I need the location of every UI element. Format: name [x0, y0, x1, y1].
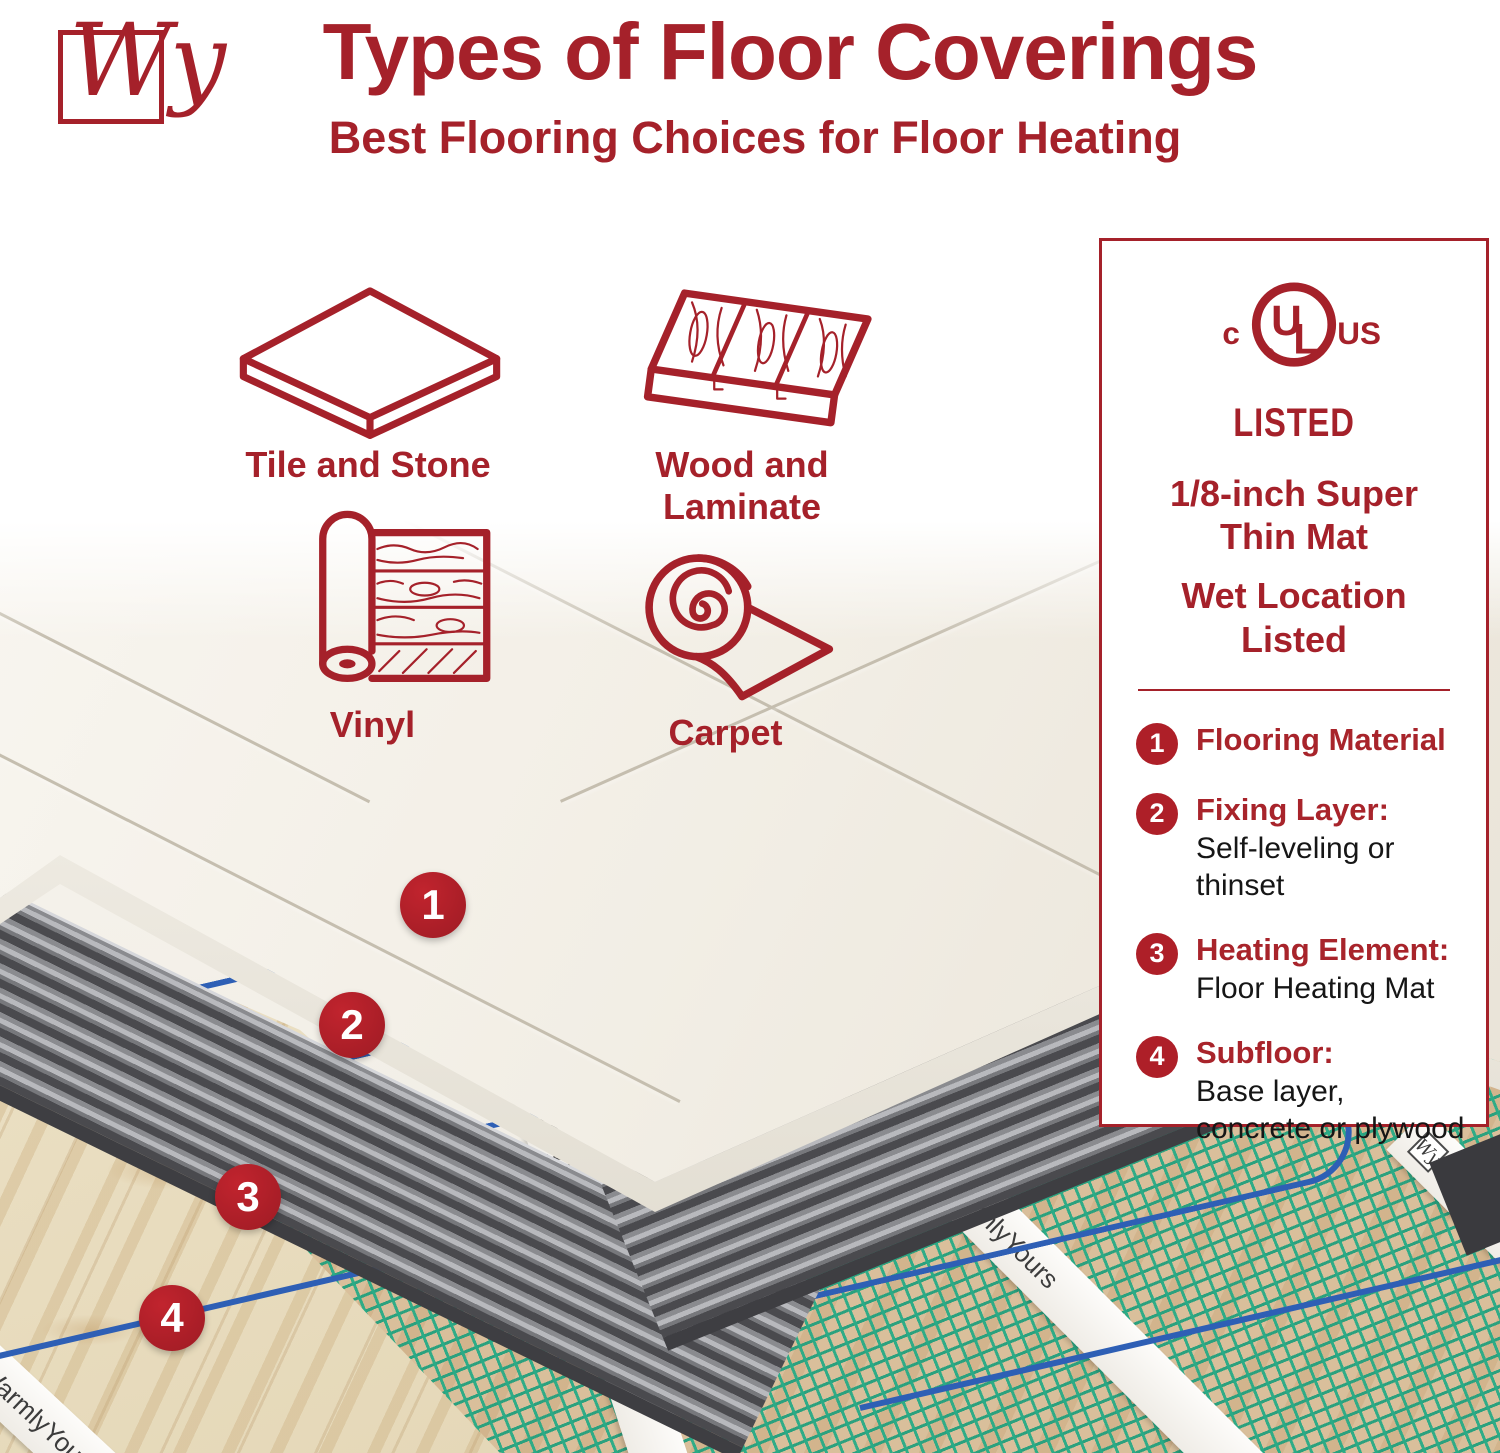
vinyl-roll-icon	[282, 498, 522, 703]
infographic-canvas: Wy Types of Floor Coverings Best Floorin…	[0, 0, 1500, 1453]
legend-item-fixing-layer: 2 Fixing Layer: Self-leveling or thinset	[1102, 791, 1486, 905]
layer-marker-3: 3	[215, 1164, 281, 1230]
wood-and-laminate-label: Wood and Laminate	[582, 444, 902, 528]
tile-icon	[220, 282, 520, 447]
tile-and-stone-label: Tile and Stone	[218, 444, 518, 486]
feature-thin-mat: 1/8-inch Super Thin Mat	[1154, 472, 1434, 558]
feature-wet-location: Wet Location Listed	[1169, 574, 1419, 660]
layer-marker-2: 2	[319, 992, 385, 1058]
vinyl-label: Vinyl	[250, 704, 495, 746]
legend-badge-4: 4	[1136, 1036, 1178, 1078]
ul-c-mark: c	[1222, 316, 1240, 351]
panel-divider	[1138, 689, 1450, 691]
legend-heading: Subfloor:	[1196, 1034, 1466, 1071]
legend-badge-2: 2	[1136, 793, 1178, 835]
page-subtitle: Best Flooring Choices for Floor Heating	[125, 112, 1385, 164]
legend-item-heating-element: 3 Heating Element: Floor Heating Mat	[1102, 931, 1486, 1008]
registered-symbol: ®	[1265, 346, 1275, 360]
legend-heading: Flooring Material	[1196, 721, 1446, 758]
legend-item-subfloor: 4 Subfloor: Base layer, concrete or plyw…	[1102, 1034, 1486, 1148]
page-title: Types of Floor Coverings	[160, 6, 1420, 98]
warmlyyours-logo: Wy	[58, 30, 164, 124]
legend-item-flooring-material: 1 Flooring Material	[1102, 721, 1486, 765]
layer-legend-list: 1 Flooring Material 2 Fixing Layer: Self…	[1102, 721, 1486, 1148]
product-info-panel: U L ® c US LISTED 1/8-inch Super Thin Ma…	[1099, 238, 1489, 1127]
ul-letter-l: L	[1293, 317, 1319, 364]
legend-badge-3: 3	[1136, 933, 1178, 975]
legend-body: Base layer, concrete or plywood	[1196, 1074, 1466, 1148]
layer-marker-1: 1	[400, 872, 466, 938]
legend-body: Self-leveling or thinset	[1196, 831, 1466, 905]
legend-badge-1: 1	[1136, 723, 1178, 765]
legend-heading: Heating Element:	[1196, 931, 1449, 968]
legend-body: Floor Heating Mat	[1196, 971, 1449, 1008]
ul-us-mark: US	[1337, 316, 1381, 351]
ul-listed-label: LISTED	[1137, 401, 1452, 446]
legend-heading: Fixing Layer:	[1196, 791, 1466, 828]
layer-marker-4: 4	[139, 1285, 205, 1351]
carpet-roll-icon	[602, 522, 847, 707]
wood-plank-icon	[592, 282, 892, 444]
ul-certification-mark: U L ® c US	[1186, 275, 1402, 393]
carpet-label: Carpet	[608, 712, 843, 754]
